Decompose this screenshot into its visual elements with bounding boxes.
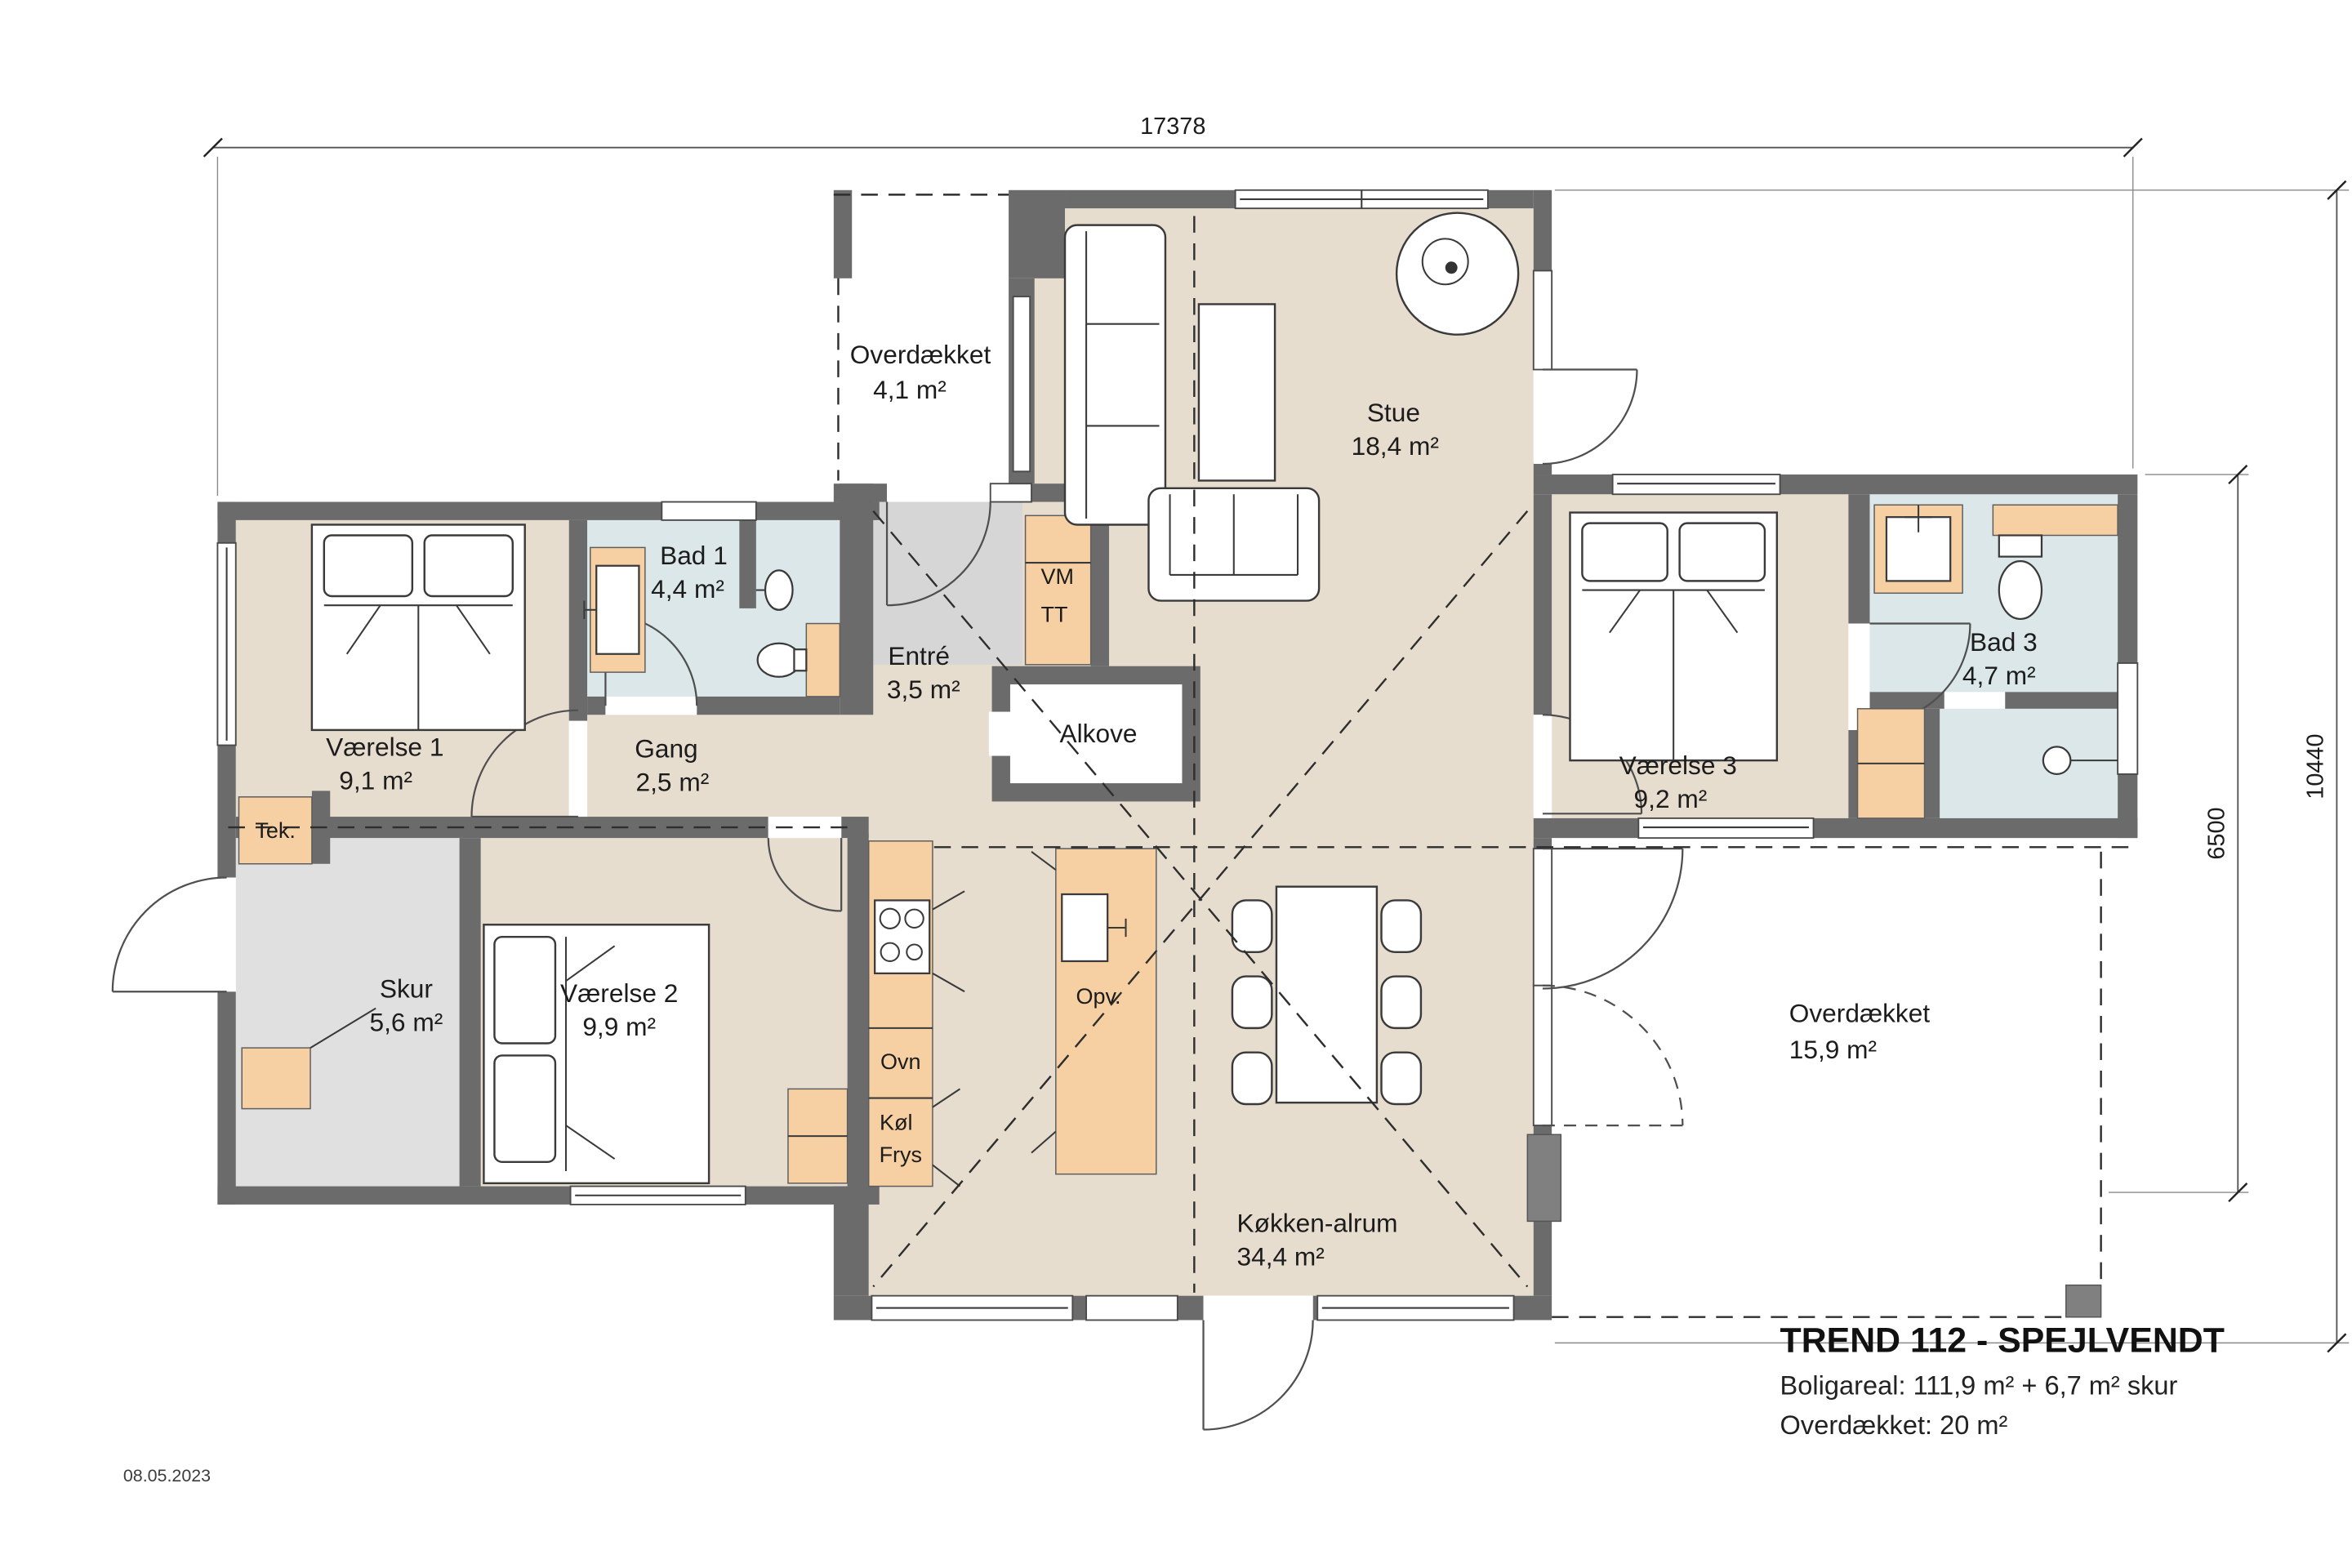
label-vaerelse1: Værelse 1: [326, 733, 443, 762]
label-ovn: Ovn: [880, 1049, 921, 1074]
label-stue-area: 18,4 m²: [1352, 431, 1439, 461]
label-opv: Opv.: [1076, 984, 1120, 1009]
label-koekken-alrum-area: 34,4 m²: [1237, 1241, 1325, 1271]
window-koekken-bottom-2: [1086, 1296, 1178, 1321]
label-bad1: Bad 1: [660, 541, 728, 570]
dim-top-label: 17378: [1140, 114, 1205, 140]
terrace-post: [2066, 1285, 2101, 1317]
label-vaerelse2: Værelse 2: [560, 978, 678, 1008]
vm-tt-closet: [1026, 515, 1091, 665]
window-stue-east: [1534, 270, 1552, 369]
window-terrace-slider-1: [1534, 849, 1552, 986]
wc2-sink: [2043, 746, 2071, 774]
bad1-cabinet: [806, 624, 840, 697]
label-overdaekket-top-area: 4,1 m²: [873, 375, 947, 404]
window-stue-west: [1013, 296, 1030, 471]
label-alkove: Alkove: [1059, 719, 1137, 748]
label-koekken-alrum: Køkken-alrum: [1237, 1208, 1398, 1237]
floor-wc2: [1940, 709, 2118, 818]
dim-right-outer-label: 10440: [2303, 733, 2329, 799]
label-entre: Entré: [888, 641, 950, 670]
window-entre-sidelight: [991, 483, 1031, 501]
label-vaerelse3-area: 9,2 m²: [1634, 784, 1708, 813]
fireplace: [1396, 213, 1518, 335]
label-tek: Tek.: [255, 818, 296, 843]
label-overdaekket-terrasse-area: 15,9 m²: [1789, 1035, 1877, 1064]
bed-vaerelse2: [483, 924, 709, 1183]
label-overdaekket-top: Overdækket: [850, 340, 991, 369]
island-sink: [1062, 894, 1107, 961]
bad3-shelf: [1993, 505, 2118, 535]
plan-title: TREND 112 - SPEJLVENDT: [1780, 1321, 2225, 1361]
label-vaerelse3: Værelse 3: [1619, 751, 1737, 780]
label-koel: Køl: [880, 1111, 913, 1135]
label-skur-area: 5,6 m²: [370, 1008, 443, 1037]
window-terrace-slider-2: [1534, 986, 1552, 1125]
label-vm: VM: [1040, 564, 1074, 589]
floor-gang: [587, 715, 873, 817]
sofa-2seat: [1148, 488, 1319, 601]
dining-set: [1232, 887, 1421, 1104]
skur-cabinet: [242, 1048, 310, 1108]
sofa-l: [1065, 225, 1165, 525]
title-block: TREND 112 - SPEJLVENDT Boligareal: 111,9…: [1780, 1321, 2225, 1441]
bed-vaerelse3: [1570, 513, 1776, 761]
label-stue: Stue: [1367, 398, 1420, 427]
label-vaerelse2-area: 9,9 m²: [582, 1012, 656, 1041]
bed-vaerelse1: [312, 524, 525, 729]
label-skur: Skur: [380, 974, 434, 1004]
bad3-toilet: [1999, 561, 2042, 619]
plan-covered-line: Overdækket: 20 m²: [1780, 1410, 2008, 1440]
label-bad3: Bad 3: [1970, 627, 2038, 657]
window-bad1-top: [661, 502, 755, 520]
label-bad3-area: 4,7 m²: [1962, 661, 2036, 690]
label-gang-area: 2,5 m²: [636, 767, 710, 796]
label-bad1-area: 4,4 m²: [651, 574, 724, 604]
plan-area-line: Boligareal: 111,9 m² + 6,7 m² skur: [1780, 1370, 2178, 1401]
drawing-date: 08.05.2023: [123, 1466, 211, 1486]
label-frys: Frys: [880, 1143, 922, 1167]
label-gang: Gang: [635, 733, 697, 763]
bad1-sink: [765, 570, 793, 609]
label-entre-area: 3,5 m²: [887, 675, 960, 704]
label-tt: TT: [1040, 603, 1067, 627]
terrace-step: [1527, 1134, 1561, 1221]
coffee-table: [1199, 304, 1275, 480]
label-overdaekket-terrasse: Overdækket: [1789, 998, 1931, 1027]
label-vaerelse1-area: 9,1 m²: [339, 766, 412, 795]
window-bad3-east: [2118, 663, 2137, 774]
dim-right-inner-label: 6500: [2204, 807, 2230, 859]
floor-plan-drawing: 17378 10440 6500 Overdækket 4,1 m² Stue …: [0, 0, 2352, 1568]
